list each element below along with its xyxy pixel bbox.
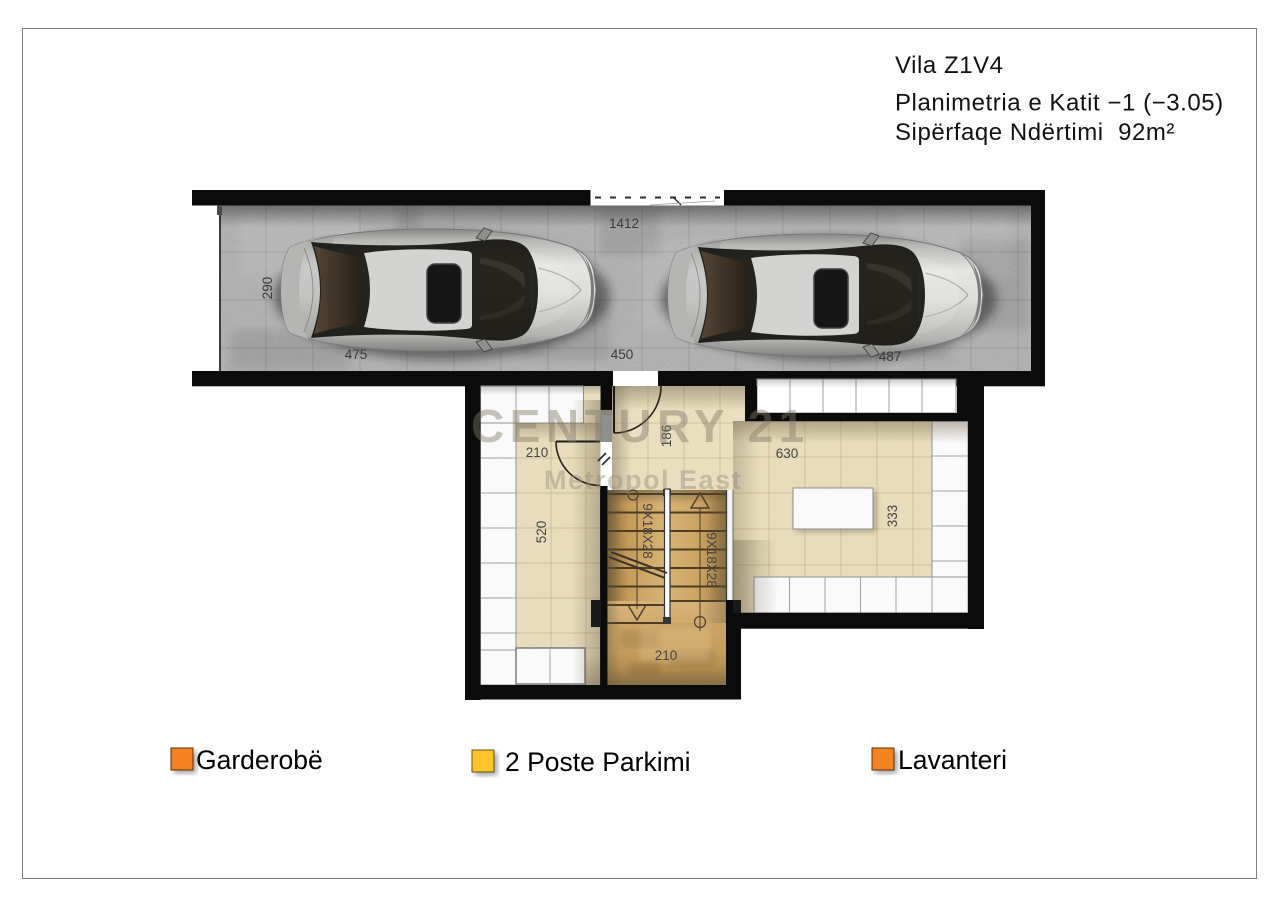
svg-text:487: 487 — [879, 349, 902, 364]
svg-text:Sipërfaqe Ndërtimi 92m²: Sipërfaqe Ndërtimi 92m² — [895, 119, 1175, 146]
svg-text:475: 475 — [345, 347, 368, 362]
svg-text:450: 450 — [611, 347, 634, 362]
svg-text:1412: 1412 — [609, 216, 639, 231]
svg-text:CENTURY 21: CENTURY 21 — [471, 400, 810, 452]
svg-text:Lavanteri: Lavanteri — [898, 745, 1007, 775]
svg-text:Garderobë: Garderobë — [196, 745, 323, 775]
svg-text:2 Poste Parkimi: 2 Poste Parkimi — [505, 747, 691, 777]
svg-text:290: 290 — [260, 277, 275, 300]
svg-text:Planimetria e Katit −1 (−3.05): Planimetria e Katit −1 (−3.05) — [895, 90, 1224, 117]
svg-text:Metropol East: Metropol East — [544, 465, 742, 495]
svg-text:Vila Z1V4: Vila Z1V4 — [895, 52, 1004, 79]
